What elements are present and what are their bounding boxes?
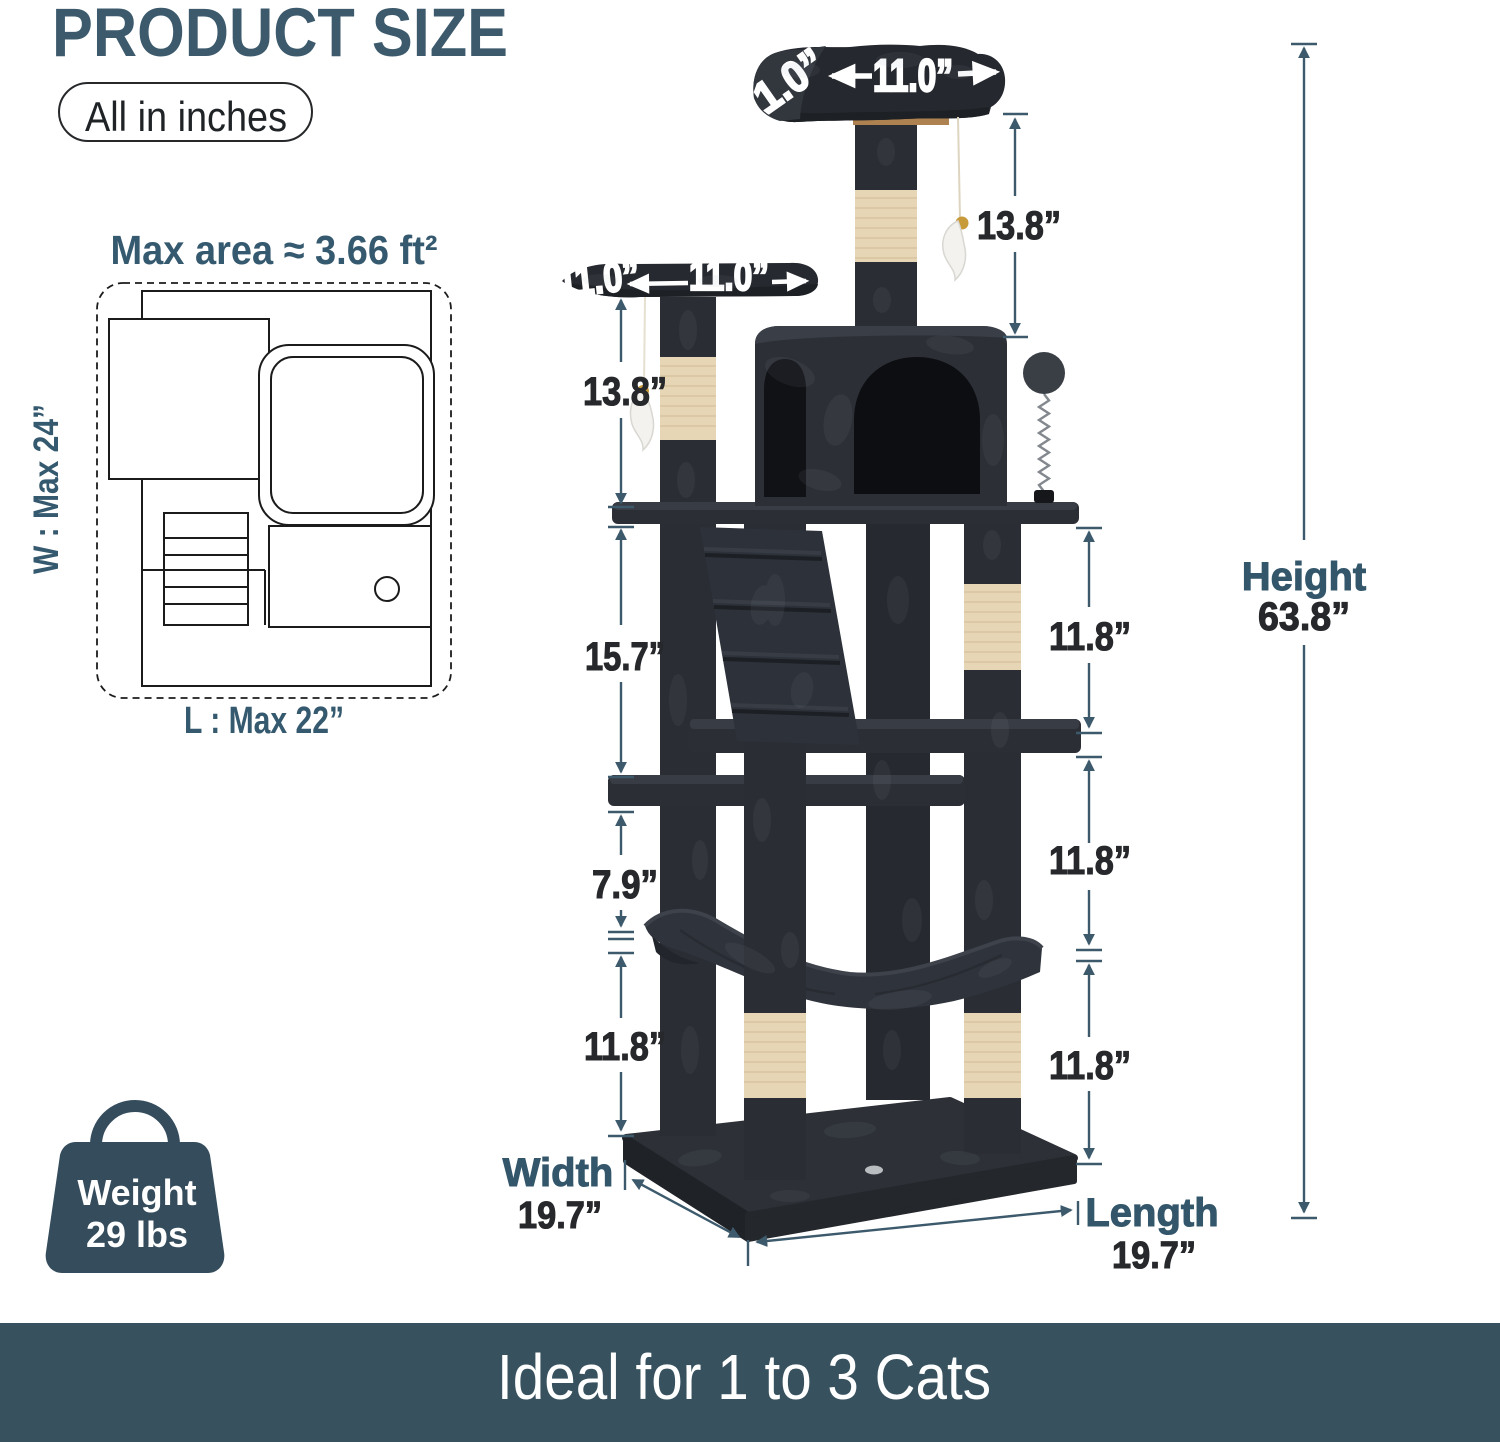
svg-text:11.8”: 11.8” (1049, 839, 1131, 883)
svg-text:13.8”: 13.8” (583, 370, 667, 414)
svg-text:L : Max 22”: L : Max 22” (184, 700, 344, 742)
svg-text:PRODUCT SIZE: PRODUCT SIZE (52, 0, 508, 71)
svg-text:19.7”: 19.7” (518, 1195, 602, 1237)
svg-text:13.8”: 13.8” (977, 204, 1061, 248)
svg-text:All in inches: All in inches (85, 93, 287, 140)
svg-text:Width: Width (503, 1151, 614, 1195)
svg-text:Ideal for 1 to 3 Cats: Ideal for 1 to 3 Cats (497, 1341, 991, 1413)
svg-text:Length: Length (1085, 1191, 1218, 1235)
svg-text:11.0”: 11.0” (689, 252, 769, 299)
svg-text:15.7”: 15.7” (585, 635, 665, 679)
svg-text:29 lbs: 29 lbs (86, 1214, 188, 1255)
svg-text:Max area ≈ 3.66 ft²: Max area ≈ 3.66 ft² (111, 227, 438, 273)
svg-text:Height: Height (1242, 555, 1366, 599)
svg-text:63.8”: 63.8” (1258, 595, 1350, 639)
svg-text:7.9”: 7.9” (592, 863, 658, 907)
svg-text:11.8”: 11.8” (1049, 615, 1131, 659)
svg-text:11.8”: 11.8” (584, 1025, 666, 1069)
svg-text:Weight: Weight (77, 1172, 196, 1213)
svg-text:11.8”: 11.8” (1049, 1044, 1131, 1088)
svg-text:19.7”: 19.7” (1112, 1235, 1196, 1277)
svg-text:W : Max 24”: W : Max 24” (27, 404, 66, 574)
